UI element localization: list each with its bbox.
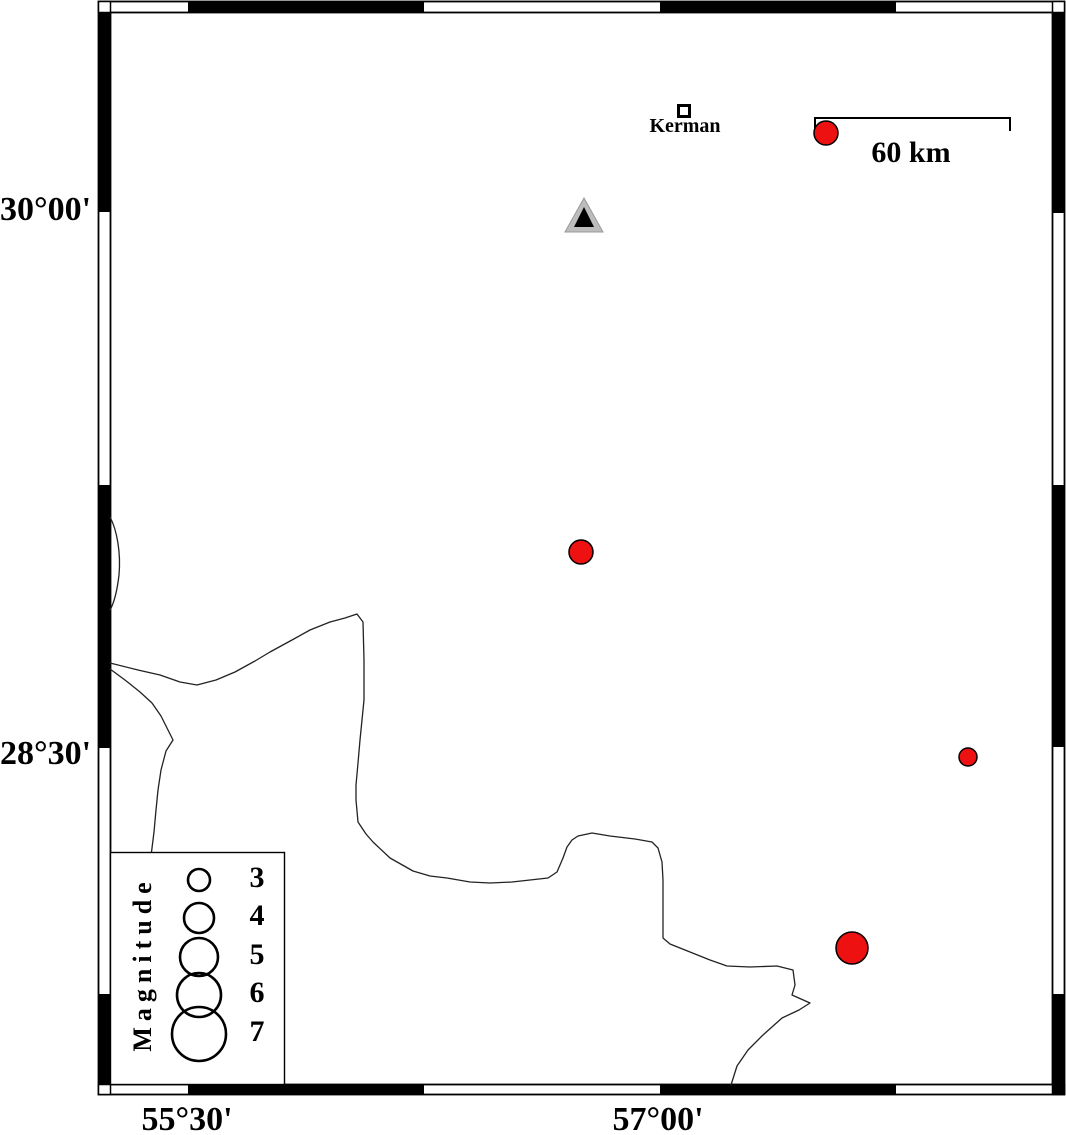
legend-magnitude-value: 5: [217, 938, 297, 971]
earthquake-marker: [959, 748, 977, 766]
scale-bar-label: 60 km: [821, 136, 1001, 171]
coastline-branch: [110, 669, 173, 856]
axis-label-lon-55-30: 55°30': [97, 1100, 277, 1135]
earthquake-layer: [569, 121, 977, 964]
seismicity-map-figure: 30°00' 28°30' 55°30' 57°00' Kerman 60 km…: [0, 0, 1066, 1135]
axis-label-lat-30-00: 30°00': [0, 190, 87, 229]
earthquake-marker: [836, 932, 868, 964]
frame-corner-top-right: [1053, 2, 1065, 13]
earthquake-marker: [569, 540, 593, 564]
frame-corner-top-left: [99, 2, 111, 13]
coastline-left-bulge: [110, 517, 120, 610]
frame-corner-bottom-left: [99, 1085, 111, 1095]
legend-magnitude-value: 6: [217, 976, 297, 1009]
axis-label-lon-57-00: 57°00': [568, 1100, 748, 1135]
legend-magnitude-value: 4: [217, 899, 297, 932]
frame-corner-bottom-right: [1053, 1085, 1065, 1095]
legend-title: Magnitude: [128, 844, 158, 1084]
station-triangle-marker: [565, 198, 603, 232]
scale-bar: [815, 118, 1010, 131]
scale-bar-line: [815, 118, 1010, 131]
city-label: Kerman: [605, 115, 765, 138]
legend-magnitude-value: 7: [217, 1015, 297, 1048]
legend-magnitude-value: 3: [217, 861, 297, 894]
axis-label-lat-28-30: 28°30': [0, 734, 87, 773]
